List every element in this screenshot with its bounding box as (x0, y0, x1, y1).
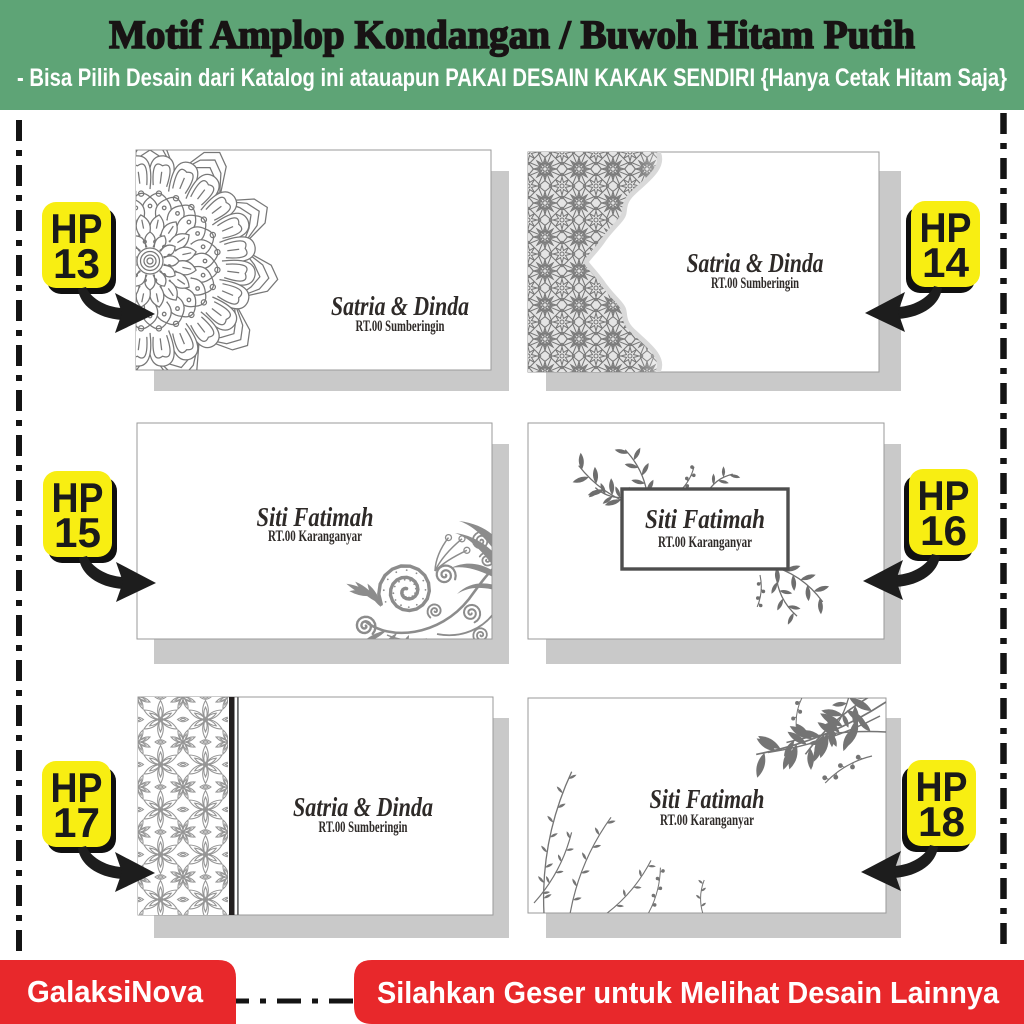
svg-text:RT.00 Karanganyar: RT.00 Karanganyar (268, 528, 362, 545)
svg-text:14: 14 (922, 239, 970, 286)
svg-text:Siti Fatimah: Siti Fatimah (645, 504, 765, 534)
svg-text:16: 16 (920, 507, 967, 554)
svg-text:Satria & Dinda: Satria & Dinda (331, 291, 469, 321)
svg-text:RT.00 Sumberingin: RT.00 Sumberingin (356, 318, 445, 335)
svg-text:Motif Amplop Kondangan / Buwoh: Motif Amplop Kondangan / Buwoh Hitam Put… (109, 12, 915, 57)
svg-text:15: 15 (54, 509, 101, 556)
svg-text:18: 18 (918, 798, 965, 845)
svg-text:RT.00 Sumberingin: RT.00 Sumberingin (319, 819, 408, 836)
svg-text:- Bisa Pilih Desain dari Katal: - Bisa Pilih Desain dari Katalog ini ata… (17, 64, 1007, 92)
svg-text:17: 17 (53, 799, 100, 846)
svg-text:Satria & Dinda: Satria & Dinda (293, 792, 433, 822)
svg-text:RT.00 Karanganyar: RT.00 Karanganyar (660, 812, 754, 829)
svg-text:RT.00 Karanganyar: RT.00 Karanganyar (658, 534, 752, 551)
svg-text:Silahkan Geser untuk Melihat D: Silahkan Geser untuk Melihat Desain Lain… (377, 975, 1000, 1010)
svg-text:Satria & Dinda: Satria & Dinda (687, 248, 824, 278)
svg-text:GalaksiNova: GalaksiNova (27, 974, 204, 1009)
svg-text:RT.00 Sumberingin: RT.00 Sumberingin (711, 275, 799, 292)
svg-text:Siti Fatimah: Siti Fatimah (650, 784, 765, 814)
svg-text:13: 13 (53, 240, 100, 287)
